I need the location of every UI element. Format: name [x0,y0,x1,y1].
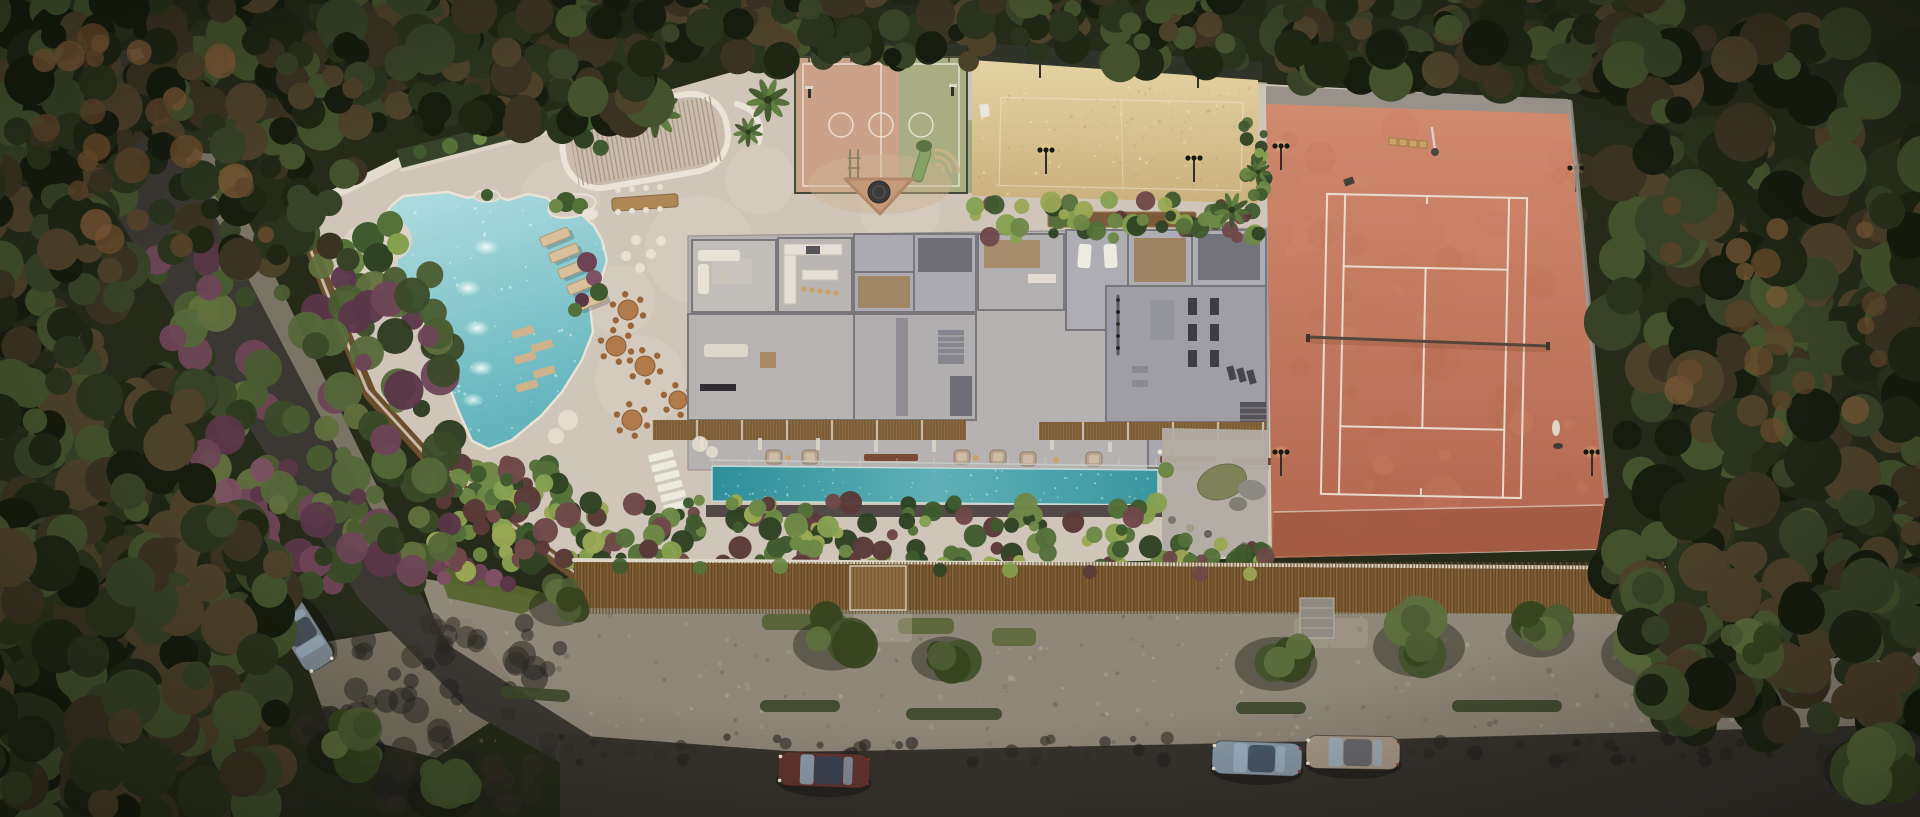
aerial-site-render [0,0,1920,817]
vignette [0,0,1920,817]
scene-svg [0,0,1920,817]
